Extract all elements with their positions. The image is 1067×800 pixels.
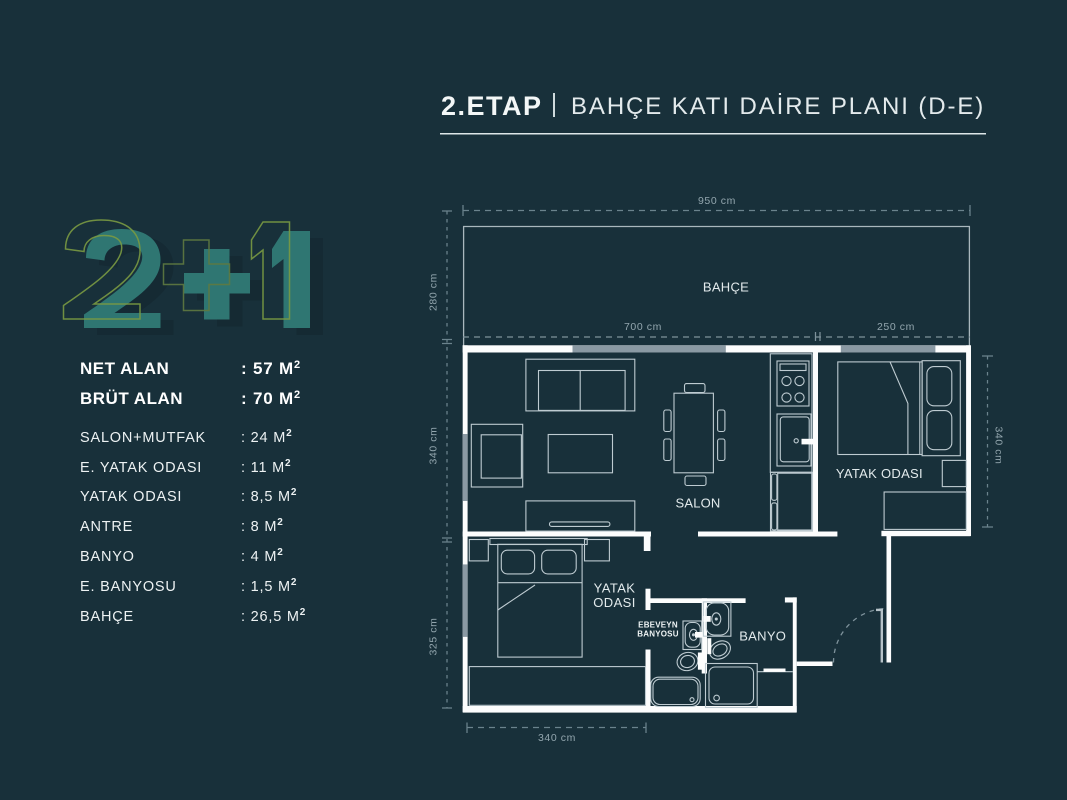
svg-text:BRÜT ALAN: BRÜT ALAN	[80, 389, 183, 408]
svg-text:: 8 M2: : 8 M2	[241, 517, 284, 535]
svg-text:BANYO: BANYO	[739, 629, 786, 644]
svg-text:: 57 M2: : 57 M2	[241, 359, 301, 378]
svg-text:: 4 M2: : 4 M2	[241, 547, 284, 565]
svg-text:340 cm: 340 cm	[428, 426, 440, 464]
svg-text:SALON: SALON	[675, 496, 720, 511]
svg-text:250 cm: 250 cm	[877, 321, 915, 333]
svg-text:E. BANYOSU: E. BANYOSU	[80, 579, 177, 595]
svg-text:: 24 M2: : 24 M2	[241, 428, 292, 446]
svg-text:BAHÇE KATI DAİRE PLANI (D-E): BAHÇE KATI DAİRE PLANI (D-E)	[571, 93, 985, 120]
svg-text:340 cm: 340 cm	[538, 732, 576, 744]
svg-text:: 26,5 M2: : 26,5 M2	[241, 607, 306, 625]
svg-text:NET ALAN: NET ALAN	[80, 359, 169, 378]
svg-text:700 cm: 700 cm	[624, 321, 662, 333]
svg-text:950 cm: 950 cm	[698, 195, 736, 207]
svg-text:: 70 M2: : 70 M2	[241, 389, 301, 408]
svg-text:2.ETAP: 2.ETAP	[441, 91, 543, 121]
svg-text:ODASI: ODASI	[593, 595, 635, 610]
svg-text:: 1,5 M2: : 1,5 M2	[241, 577, 297, 595]
svg-text:ANTRE: ANTRE	[80, 519, 133, 535]
svg-text:SALON+MUTFAK: SALON+MUTFAK	[80, 430, 206, 446]
svg-text:BAHÇE: BAHÇE	[703, 280, 749, 295]
svg-text:: 11 M2: : 11 M2	[241, 458, 291, 476]
svg-text:340 cm: 340 cm	[993, 426, 1005, 464]
svg-text:BANYOSU: BANYOSU	[637, 630, 678, 639]
svg-text:YATAK ODASI: YATAK ODASI	[836, 466, 923, 481]
svg-text:YATAK: YATAK	[594, 581, 636, 596]
svg-text:280 cm: 280 cm	[428, 273, 440, 311]
svg-text:E. YATAK ODASI: E. YATAK ODASI	[80, 460, 202, 476]
svg-text:325 cm: 325 cm	[428, 617, 440, 655]
svg-text:: 8,5 M2: : 8,5 M2	[241, 487, 297, 505]
svg-text:YATAK ODASI: YATAK ODASI	[80, 489, 182, 505]
svg-text:EBEVEYN: EBEVEYN	[638, 621, 678, 630]
svg-text:BANYO: BANYO	[80, 549, 135, 565]
svg-text:BAHÇE: BAHÇE	[80, 609, 134, 625]
